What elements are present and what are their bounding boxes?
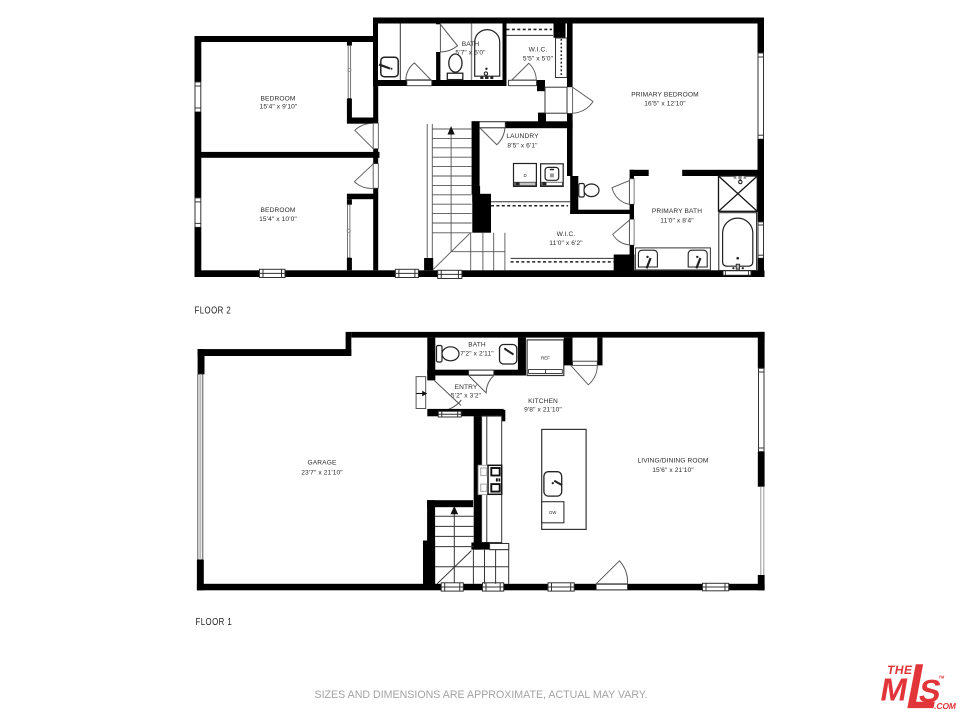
svg-text:23'7" x 21'10": 23'7" x 21'10" [301, 470, 343, 477]
svg-text:7'2" x 2'11": 7'2" x 2'11" [460, 350, 494, 357]
svg-text:W.I.C.: W.I.C. [529, 47, 548, 54]
svg-text:11'0" x 8'4": 11'0" x 8'4" [660, 218, 694, 225]
svg-text:BATH: BATH [468, 341, 486, 348]
svg-text:W.I.C.: W.I.C. [557, 231, 576, 238]
svg-text:DW: DW [549, 510, 556, 515]
svg-text:ENTRY: ENTRY [455, 384, 478, 391]
svg-text:15'4" x 10'0": 15'4" x 10'0" [259, 216, 297, 223]
svg-text:BEDROOM: BEDROOM [261, 207, 296, 214]
svg-text:BATH: BATH [462, 41, 480, 48]
svg-text:15'6" x 21'10": 15'6" x 21'10" [652, 467, 694, 474]
svg-text:5'2" x 3'2": 5'2" x 3'2" [451, 392, 482, 399]
svg-text:PRIMARY BEDROOM: PRIMARY BEDROOM [631, 92, 699, 99]
svg-text:BEDROOM: BEDROOM [261, 95, 296, 102]
svg-text:LIVING/DINING ROOM: LIVING/DINING ROOM [637, 457, 708, 464]
svg-text:REF: REF [541, 356, 550, 361]
svg-text:GARAGE: GARAGE [308, 460, 337, 467]
svg-text:9'8" x 21'10": 9'8" x 21'10" [524, 407, 562, 414]
svg-text:FLOOR 1: FLOOR 1 [196, 616, 233, 628]
svg-text:.COM: .COM [933, 701, 956, 711]
svg-text:8'5" x 6'1": 8'5" x 6'1" [507, 143, 538, 150]
svg-text:15'4" x 9'10": 15'4" x 9'10" [260, 104, 298, 111]
svg-text:KITCHEN: KITCHEN [528, 398, 558, 405]
svg-text:LAUNDRY: LAUNDRY [506, 133, 539, 140]
svg-text:16'5" x 12'10": 16'5" x 12'10" [644, 100, 686, 107]
svg-text:5'7" x 5'0": 5'7" x 5'0" [455, 50, 486, 57]
svg-text:PRIMARY BATH: PRIMARY BATH [652, 208, 702, 215]
svg-text:SIZES AND DIMENSIONS ARE APPRO: SIZES AND DIMENSIONS ARE APPROXIMATE, AC… [315, 689, 648, 701]
svg-text:FLOOR 2: FLOOR 2 [195, 305, 232, 317]
svg-text:11'0" x 6'2": 11'0" x 6'2" [549, 240, 583, 247]
svg-text:5'5" x 5'0": 5'5" x 5'0" [523, 55, 554, 62]
